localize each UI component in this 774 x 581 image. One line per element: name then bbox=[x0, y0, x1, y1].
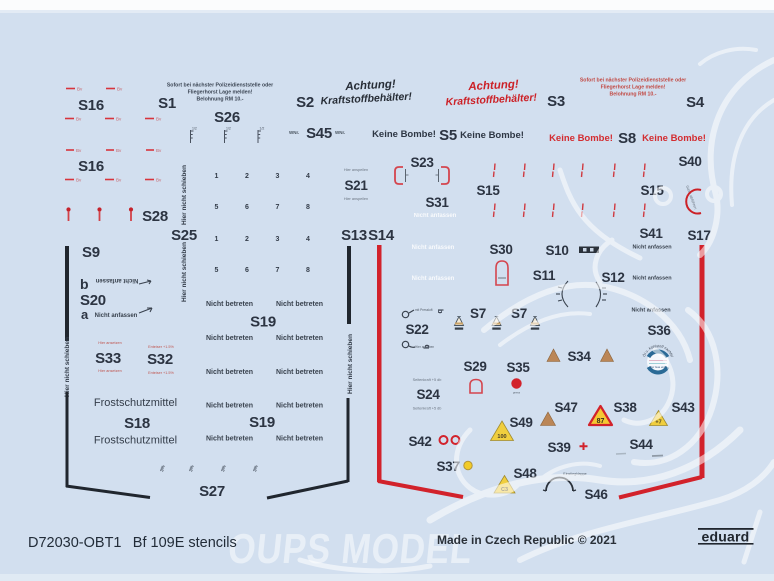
svg-text:Hier ansetzen: Hier ansetzen bbox=[98, 341, 121, 345]
svg-text:Sofort bei nächster Polizeidie: Sofort bei nächster Polizeidienststelle … bbox=[167, 83, 273, 89]
svg-text:8: 8 bbox=[306, 204, 310, 211]
svg-text:Keine Bombe!: Keine Bombe! bbox=[642, 133, 706, 144]
svg-text:+7: +7 bbox=[655, 420, 661, 426]
svg-text:S10: S10 bbox=[545, 243, 568, 258]
svg-text:5: 5 bbox=[215, 204, 219, 211]
svg-text:4: 4 bbox=[306, 173, 310, 180]
svg-text:Bv: Bv bbox=[76, 148, 82, 153]
svg-text:S38: S38 bbox=[613, 400, 637, 415]
svg-text:Hier nicht schieben: Hier nicht schieben bbox=[181, 242, 188, 302]
svg-text:Nicht betreten: Nicht betreten bbox=[276, 369, 323, 376]
svg-text:S44: S44 bbox=[629, 437, 653, 452]
svg-text:S16: S16 bbox=[78, 158, 104, 175]
svg-text:S11: S11 bbox=[533, 268, 556, 283]
svg-text:S1: S1 bbox=[158, 95, 176, 112]
svg-text:S19: S19 bbox=[249, 414, 275, 431]
svg-text:S45: S45 bbox=[306, 125, 332, 142]
svg-text:2: 2 bbox=[245, 236, 249, 243]
svg-text:Bv: Bv bbox=[156, 148, 162, 153]
svg-text:Bv: Bv bbox=[116, 117, 122, 122]
svg-text:Bv: Bv bbox=[76, 117, 82, 122]
svg-text:Keine Bombe!: Keine Bombe! bbox=[549, 133, 613, 144]
svg-text:S15: S15 bbox=[640, 183, 664, 198]
svg-text:Hier nicht schieben: Hier nicht schieben bbox=[347, 334, 354, 394]
svg-text:2: 2 bbox=[245, 173, 249, 180]
svg-text:1/2: 1/2 bbox=[192, 127, 197, 131]
svg-text:Keine Bombe!: Keine Bombe! bbox=[372, 129, 436, 140]
svg-text:S29: S29 bbox=[463, 359, 486, 374]
svg-text:Seitenkraft +5 db: Seitenkraft +5 db bbox=[413, 407, 442, 411]
svg-text:Nicht betreten: Nicht betreten bbox=[276, 436, 323, 443]
svg-text:Hier ansetzen: Hier ansetzen bbox=[98, 369, 121, 373]
svg-text:Nicht anfassen: Nicht anfassen bbox=[632, 245, 672, 251]
svg-text:Nicht betreten: Nicht betreten bbox=[206, 335, 253, 342]
svg-text:S36: S36 bbox=[647, 323, 671, 338]
svg-text:Hier anspeilen: Hier anspeilen bbox=[344, 197, 368, 201]
svg-text:Bv: Bv bbox=[116, 148, 122, 153]
svg-text:Nicht anfassen: Nicht anfassen bbox=[632, 276, 672, 282]
svg-text:Nur Gas einf.: Nur Gas einf. bbox=[650, 365, 667, 369]
svg-text:S49: S49 bbox=[509, 415, 532, 430]
svg-text:S13: S13 bbox=[341, 227, 367, 244]
svg-text:Made in Czech Republic © 2021: Made in Czech Republic © 2021 bbox=[437, 533, 617, 547]
svg-text:3: 3 bbox=[276, 173, 280, 180]
svg-text:3: 3 bbox=[276, 236, 280, 243]
svg-text:6: 6 bbox=[245, 204, 249, 211]
svg-text:S39: S39 bbox=[547, 440, 570, 455]
svg-text:S41: S41 bbox=[639, 226, 663, 241]
svg-text:Fliegerhorst Lage melden!: Fliegerhorst Lage melden! bbox=[188, 90, 253, 96]
svg-text:S31: S31 bbox=[425, 195, 449, 210]
svg-text:Nicht betreten: Nicht betreten bbox=[206, 436, 253, 443]
svg-text:Bv: Bv bbox=[77, 87, 83, 92]
svg-text:S46: S46 bbox=[584, 487, 608, 502]
svg-text:S23: S23 bbox=[410, 155, 434, 170]
svg-text:4: 4 bbox=[306, 236, 310, 243]
svg-text:6: 6 bbox=[245, 267, 249, 274]
svg-text:7: 7 bbox=[276, 267, 280, 274]
svg-text:S25: S25 bbox=[171, 227, 197, 244]
svg-text:a: a bbox=[81, 307, 89, 322]
svg-text:100: 100 bbox=[497, 434, 506, 440]
svg-text:Fliegerhorst Lage melden!: Fliegerhorst Lage melden! bbox=[601, 85, 666, 91]
svg-text:1: 1 bbox=[215, 236, 219, 243]
svg-text:Enteiser +1.5%: Enteiser +1.5% bbox=[148, 371, 174, 375]
svg-text:S34: S34 bbox=[567, 349, 591, 364]
svg-text:Nicht anfassen: Nicht anfassen bbox=[95, 313, 138, 319]
svg-text:eduard: eduard bbox=[702, 529, 750, 545]
svg-text:S4: S4 bbox=[686, 94, 705, 111]
svg-text:1: 1 bbox=[215, 173, 219, 180]
svg-text:Frostschutzmittel: Frostschutzmittel bbox=[94, 397, 177, 409]
svg-text:S32: S32 bbox=[147, 351, 173, 368]
svg-text:b: b bbox=[80, 276, 89, 292]
svg-text:S22: S22 bbox=[405, 322, 428, 337]
svg-text:1/2: 1/2 bbox=[226, 127, 231, 131]
svg-text:S26: S26 bbox=[214, 109, 240, 126]
svg-text:Frostschutzmittel: Frostschutzmittel bbox=[94, 435, 177, 447]
svg-text:b: b bbox=[422, 344, 431, 349]
svg-text:Nicht betreten: Nicht betreten bbox=[276, 335, 323, 342]
svg-text:b: b bbox=[436, 309, 445, 314]
svg-text:Keine Bombe!: Keine Bombe! bbox=[460, 130, 524, 141]
svg-text:Bv: Bv bbox=[156, 117, 162, 122]
svg-text:Sofort bei nächster Polizeidie: Sofort bei nächster Polizeidienststelle … bbox=[580, 78, 686, 84]
svg-text:Bv: Bv bbox=[156, 178, 162, 183]
svg-text:Hier anspeilen: Hier anspeilen bbox=[344, 168, 368, 172]
svg-text:mit Pressluft: mit Pressluft bbox=[415, 308, 433, 312]
svg-text:S7: S7 bbox=[470, 306, 486, 321]
svg-text:S35: S35 bbox=[506, 360, 530, 375]
svg-text:S28: S28 bbox=[142, 208, 168, 225]
svg-text:S2: S2 bbox=[296, 94, 314, 111]
svg-text:S15: S15 bbox=[476, 183, 500, 198]
svg-text:WNr.: WNr. bbox=[289, 130, 299, 135]
svg-text:S14: S14 bbox=[368, 227, 395, 244]
svg-text:Nicht betreten: Nicht betreten bbox=[276, 301, 323, 308]
svg-text:S19: S19 bbox=[250, 314, 276, 331]
svg-text:S16: S16 bbox=[78, 97, 104, 114]
svg-text:S8: S8 bbox=[618, 130, 636, 147]
svg-text:S27: S27 bbox=[199, 483, 225, 500]
svg-text:S21: S21 bbox=[344, 178, 368, 193]
svg-text:Nicht anfassen: Nicht anfassen bbox=[412, 245, 455, 251]
svg-text:87: 87 bbox=[597, 418, 605, 425]
svg-text:Nicht betreten: Nicht betreten bbox=[206, 369, 253, 376]
svg-text:Nicht betreten: Nicht betreten bbox=[206, 403, 253, 410]
svg-text:1/2: 1/2 bbox=[260, 127, 265, 131]
svg-text:Hier nicht schieben: Hier nicht schieben bbox=[64, 337, 71, 397]
svg-text:Nicht anfassen: Nicht anfassen bbox=[95, 277, 138, 283]
svg-text:Hier nicht schieben: Hier nicht schieben bbox=[181, 165, 188, 225]
svg-text:S24: S24 bbox=[416, 387, 440, 402]
svg-text:8: 8 bbox=[306, 267, 310, 274]
svg-text:Enteiser +1.5%: Enteiser +1.5% bbox=[148, 345, 174, 349]
svg-text:Belohnung RM 10.-: Belohnung RM 10.- bbox=[610, 92, 657, 98]
svg-text:WNr.: WNr. bbox=[335, 130, 345, 135]
svg-text:Nicht anfassen: Nicht anfassen bbox=[412, 276, 455, 282]
svg-text:Nicht anfassen: Nicht anfassen bbox=[414, 213, 457, 219]
svg-text:S33: S33 bbox=[95, 350, 121, 367]
svg-text:Bv: Bv bbox=[116, 178, 122, 183]
svg-text:Seitenkraft +5 db: Seitenkraft +5 db bbox=[413, 378, 442, 382]
svg-text:press: press bbox=[513, 391, 521, 395]
svg-text:S40: S40 bbox=[678, 154, 701, 169]
svg-text:Nicht betreten: Nicht betreten bbox=[206, 301, 253, 308]
svg-text:Belohnung RM 10.-: Belohnung RM 10.- bbox=[197, 97, 244, 103]
svg-text:S9: S9 bbox=[82, 244, 100, 261]
svg-text:S42: S42 bbox=[408, 434, 431, 449]
svg-text:S30: S30 bbox=[489, 242, 512, 257]
svg-text:5: 5 bbox=[215, 267, 219, 274]
svg-text:S18: S18 bbox=[124, 415, 150, 432]
svg-text:D72030-OBT1 Bf 109E stencils: D72030-OBT1 Bf 109E stencils bbox=[28, 535, 237, 551]
svg-text:S12: S12 bbox=[601, 270, 624, 285]
svg-text:S43: S43 bbox=[671, 400, 695, 415]
svg-text:Bv: Bv bbox=[76, 178, 82, 183]
svg-text:S3: S3 bbox=[547, 93, 565, 110]
svg-text:Bv: Bv bbox=[117, 87, 123, 92]
svg-text:7: 7 bbox=[276, 204, 280, 211]
svg-text:S5: S5 bbox=[439, 127, 457, 144]
svg-text:Nicht betreten: Nicht betreten bbox=[276, 403, 323, 410]
svg-text:S47: S47 bbox=[554, 400, 577, 415]
